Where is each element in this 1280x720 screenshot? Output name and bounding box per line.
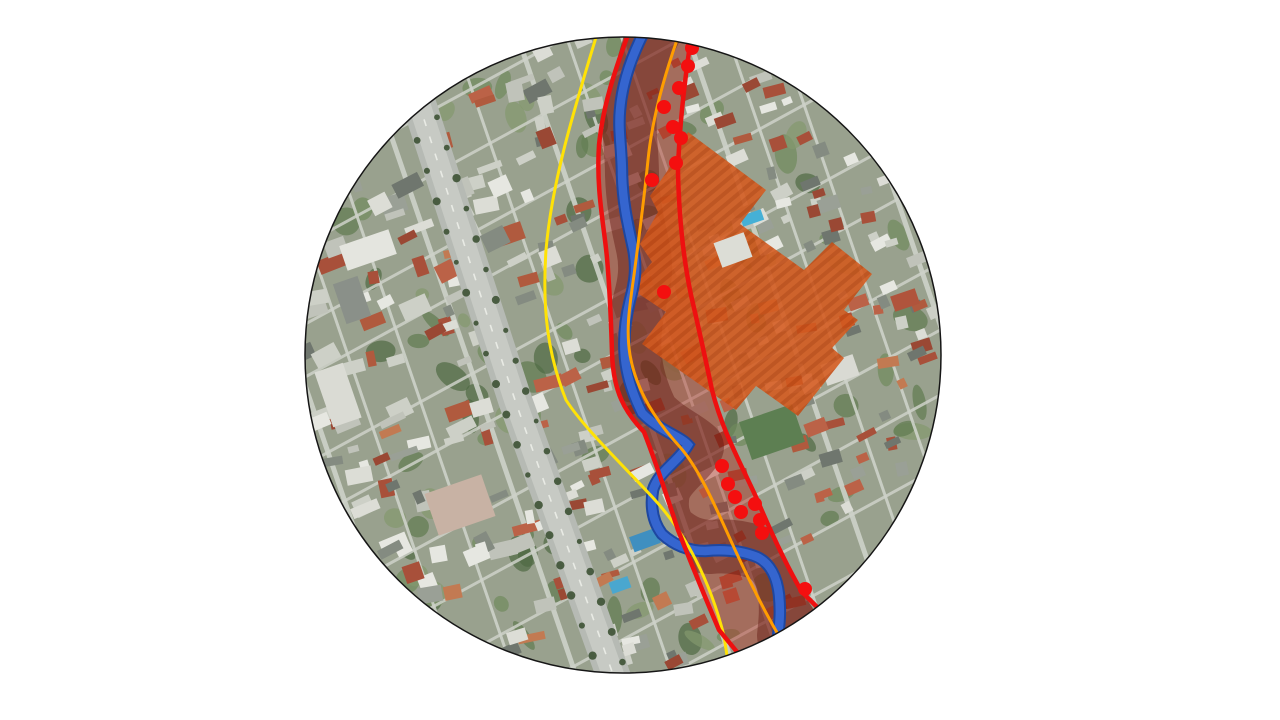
risk-marker — [645, 173, 659, 187]
risk-marker — [755, 526, 769, 540]
map-layers — [0, 0, 1280, 720]
risk-marker — [657, 285, 671, 299]
map-canvas — [0, 0, 1280, 720]
risk-marker — [657, 100, 671, 114]
risk-marker — [728, 490, 742, 504]
risk-marker — [674, 131, 688, 145]
risk-marker — [715, 459, 729, 473]
risk-marker — [748, 497, 762, 511]
risk-marker — [734, 505, 748, 519]
risk-marker — [681, 59, 695, 73]
risk-marker — [721, 477, 735, 491]
satellite-map-circle[interactable] — [0, 0, 1280, 720]
risk-marker — [672, 81, 686, 95]
risk-marker — [753, 513, 767, 527]
risk-marker — [798, 582, 812, 596]
risk-marker — [669, 156, 683, 170]
